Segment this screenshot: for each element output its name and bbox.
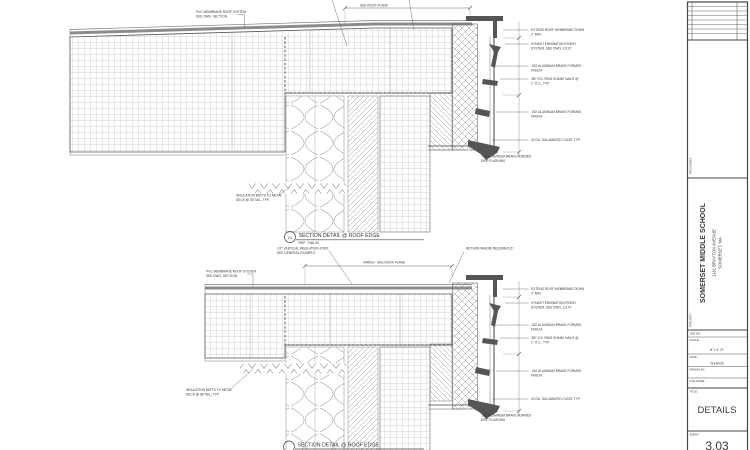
svg-text:1" O.C., TYP.: 1" O.C., TYP. bbox=[531, 81, 550, 85]
note-membrane: PVC MEMBRANE ROOF SYSTEM SEE DWG. SECTIO… bbox=[206, 270, 256, 287]
revisions-label: REVISIONS bbox=[689, 158, 693, 174]
title-label: TITLE: bbox=[690, 390, 699, 394]
note-insulation-joint: 1/2" VERTICAL INSULATION JOINT, SEE GENE… bbox=[277, 247, 352, 285]
drawing-sheet: SEE ROOF PLANS PVC MEMBRANE ROOF SYSTEM … bbox=[0, 0, 750, 450]
svg-text:1" O.C., TYP.: 1" O.C., TYP. bbox=[531, 340, 550, 344]
dim-label: SEE ROOF PLANS bbox=[360, 4, 388, 8]
svg-text:DRIP FLASHING: DRIP FLASHING bbox=[481, 159, 506, 163]
scale-label: SCALE: bbox=[690, 338, 700, 342]
svg-text:SEE DWG. SECTION: SEE DWG. SECTION bbox=[206, 274, 238, 278]
svg-text:RETURN WHERE REQUIRED 6": RETURN WHERE REQUIRED 6" bbox=[466, 247, 514, 251]
project-name: SOMERSET MIDDLE SCHOOL bbox=[700, 202, 707, 303]
svg-text:2" MIN.: 2" MIN. bbox=[531, 291, 542, 295]
svg-text:FASCIA: FASCIA bbox=[531, 114, 543, 118]
svg-text:DECK @ DETAIL, TYP.: DECK @ DETAIL, TYP. bbox=[236, 198, 269, 202]
svg-text:FASCIA: FASCIA bbox=[531, 327, 543, 331]
batt-insulation-zigzag bbox=[249, 184, 346, 194]
svg-text:FASCIA: FASCIA bbox=[531, 68, 543, 72]
note-cleat: 20 GA. GALVANIZED CLEAT, TYP. bbox=[531, 138, 581, 142]
svg-text:SYSTEM, SEE DWG. 1/3.07: SYSTEM, SEE DWG. 1/3.07 bbox=[531, 46, 572, 50]
project-label: PROJECT: bbox=[689, 312, 693, 327]
wall-assembly bbox=[286, 344, 452, 450]
date-label: DATE: bbox=[690, 355, 698, 359]
project-address1: 1141 BRAYTON AVENUE bbox=[712, 229, 717, 277]
sheet-number: 3.03 bbox=[705, 439, 729, 450]
date-value: 5/16/03 bbox=[710, 361, 724, 366]
title-block: REVISIONS SOMERSET MIDDLE SCHOOL 1141 BR… bbox=[688, 2, 748, 450]
detail-title-top: 21 SECTION DETAIL @ ROOF EDGE REF: 7/A6.… bbox=[285, 232, 425, 246]
job-no-label: JOB NO. bbox=[690, 332, 701, 336]
detail-ref: REF: 7/A6.30 bbox=[299, 241, 319, 245]
svg-text:DRIP FLASHING: DRIP FLASHING bbox=[481, 418, 506, 422]
detail-top: SEE ROOF PLANS PVC MEMBRANE ROOF SYSTEM … bbox=[70, 0, 585, 245]
dimension-varies: VARIES - SEE ROOF PLANS bbox=[303, 261, 454, 285]
dim-label: VARIES - SEE ROOF PLANS bbox=[363, 261, 405, 265]
file-name-label: FILE NAME: bbox=[690, 379, 706, 383]
batt-insulation-zigzag bbox=[240, 364, 346, 374]
drawn-by-label: DRAWN BY: bbox=[690, 368, 706, 372]
dimension-roof-plans: SEE ROOF PLANS bbox=[343, 4, 472, 26]
svg-text:2" MIN.: 2" MIN. bbox=[531, 32, 542, 36]
svg-text:FASCIA: FASCIA bbox=[531, 373, 543, 377]
wall-assembly bbox=[286, 93, 452, 232]
cad-canvas: SEE ROOF PLANS PVC MEMBRANE ROOF SYSTEM … bbox=[0, 0, 750, 450]
sheet-label: SHEET bbox=[690, 433, 700, 437]
svg-text:SYSTEM, SEE DWG. 1/3.07: SYSTEM, SEE DWG. 1/3.07 bbox=[531, 305, 572, 309]
detail-title: SECTION DETAIL @ ROOF EDGE bbox=[298, 442, 380, 448]
project-address2: SOMERSET, MA bbox=[718, 237, 723, 269]
svg-text:SEE GENERAL EXAMPLE: SEE GENERAL EXAMPLE bbox=[277, 251, 315, 255]
svg-text:SEE DWG. SECTION: SEE DWG. SECTION bbox=[196, 14, 228, 18]
scale-value: 6"=1'-0" bbox=[710, 347, 725, 352]
sheet-title: DETAILS bbox=[698, 405, 737, 416]
svg-text:DECK @ DETAIL, TYP.: DECK @ DETAIL, TYP. bbox=[186, 392, 219, 396]
note-cleat: 20 GA. GALVANIZED CLEAT, TYP. bbox=[531, 397, 581, 401]
detail-number: 21 bbox=[288, 235, 293, 240]
detail-bottom: VARIES - SEE ROOF PLANS PVC MEMBRANE ROO… bbox=[186, 247, 585, 450]
detail-title: SECTION DETAIL @ ROOF EDGE bbox=[299, 233, 381, 239]
